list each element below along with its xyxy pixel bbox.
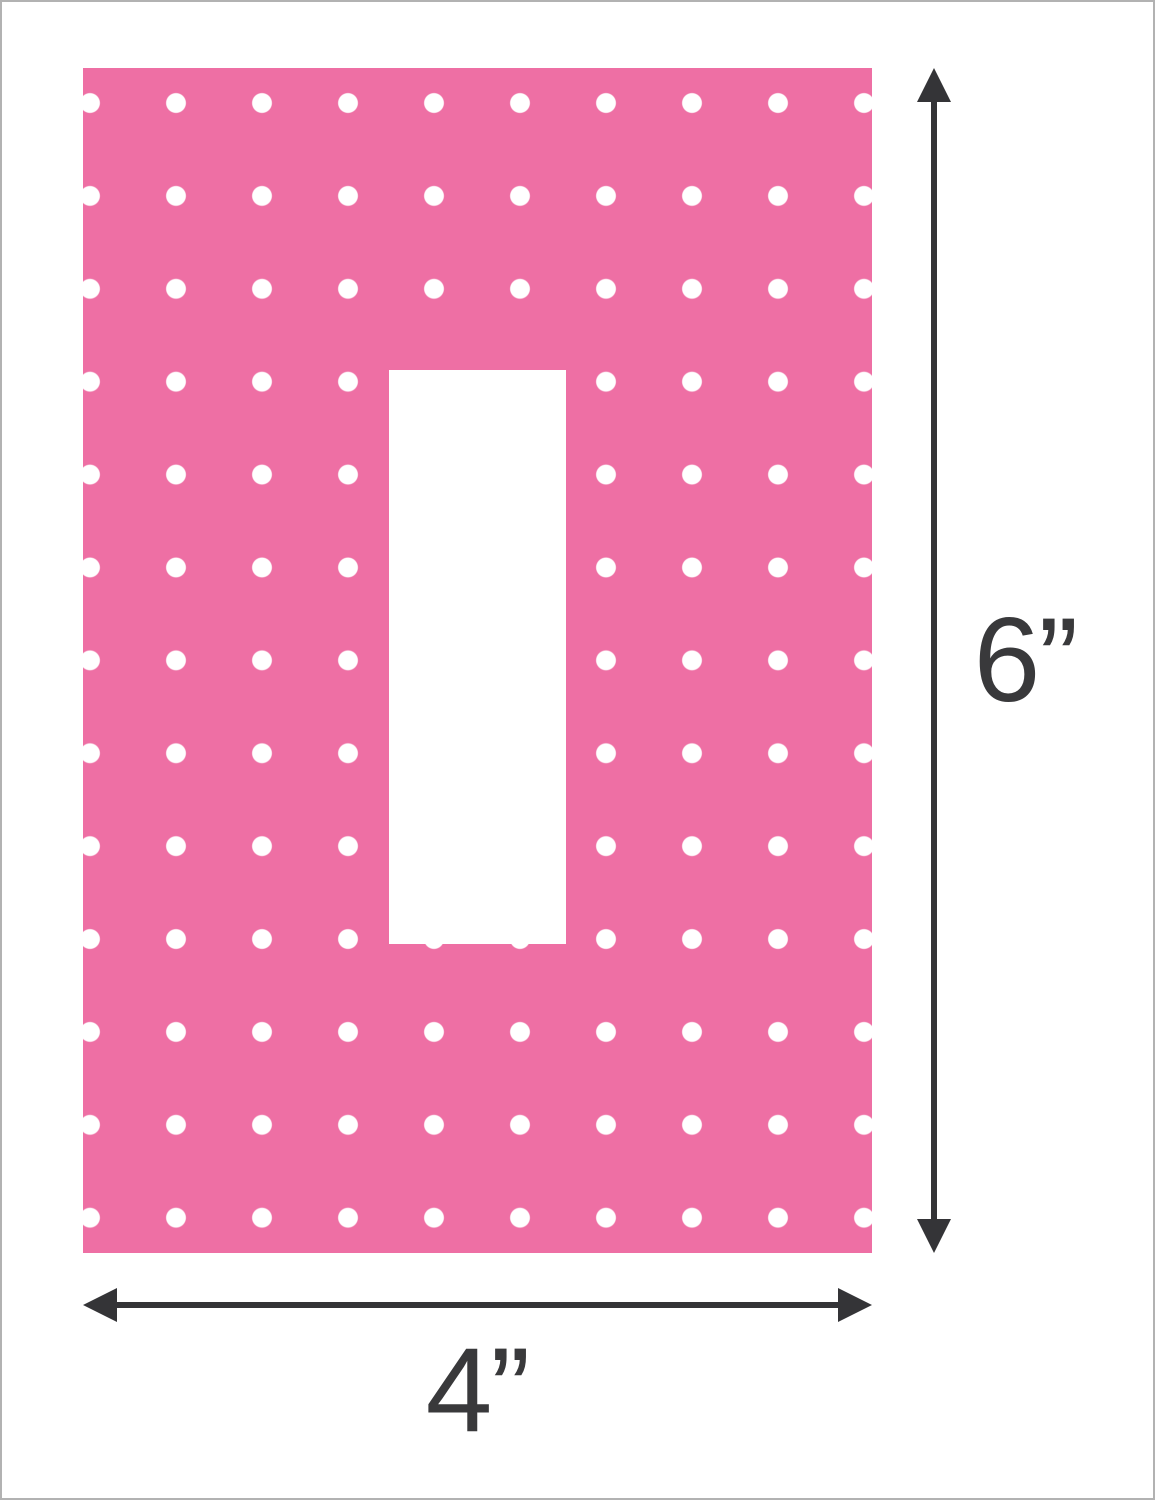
height-dimension-label: 6”	[950, 600, 1100, 720]
arrow-down-icon	[917, 1219, 951, 1253]
horizontal-arrow-line	[111, 1302, 844, 1308]
width-dimension-arrow	[83, 1288, 872, 1322]
polka-dot-switch-plate	[83, 68, 872, 1253]
arrow-right-icon	[838, 1288, 872, 1322]
width-dimension-label: 4”	[402, 1330, 552, 1450]
toggle-switch-cutout	[389, 370, 566, 944]
vertical-arrow-line	[931, 96, 937, 1225]
height-dimension-arrow	[917, 68, 951, 1253]
